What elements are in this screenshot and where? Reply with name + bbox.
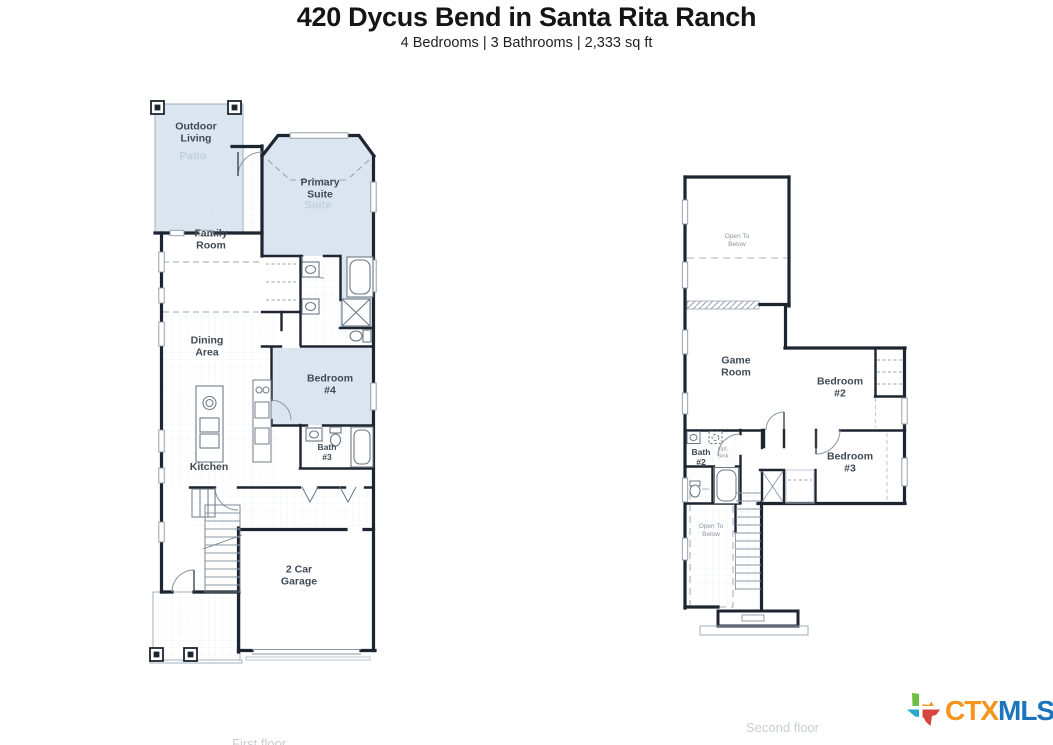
first-floor-plan xyxy=(148,98,383,673)
ctxmls-logo: CTXMLS xyxy=(902,692,1053,730)
kitchen-counter xyxy=(253,380,271,462)
logo-text-ctx: CTX xyxy=(945,695,998,727)
logo-text-mls: MLS xyxy=(998,695,1053,727)
floor-plan-page: 420 Dycus Bend in Santa Rita Ranch 4 Bed… xyxy=(0,0,1053,745)
second-floor-plan xyxy=(660,165,920,645)
closet-shelves xyxy=(266,264,296,300)
kitchen-island xyxy=(196,386,223,462)
page-title: 420 Dycus Bend in Santa Rita Ranch xyxy=(0,2,1053,33)
railing-hatch xyxy=(687,301,759,309)
page-subtitle: 4 Bedrooms | 3 Bathrooms | 2,333 sq ft xyxy=(0,35,1053,51)
garage-door xyxy=(246,650,370,661)
header: 420 Dycus Bend in Santa Rita Ranch 4 Bed… xyxy=(0,2,1053,51)
texas-icon xyxy=(902,692,942,730)
second-floor-caption: Second floor xyxy=(746,720,819,735)
first-floor-caption: First floor xyxy=(232,736,286,745)
